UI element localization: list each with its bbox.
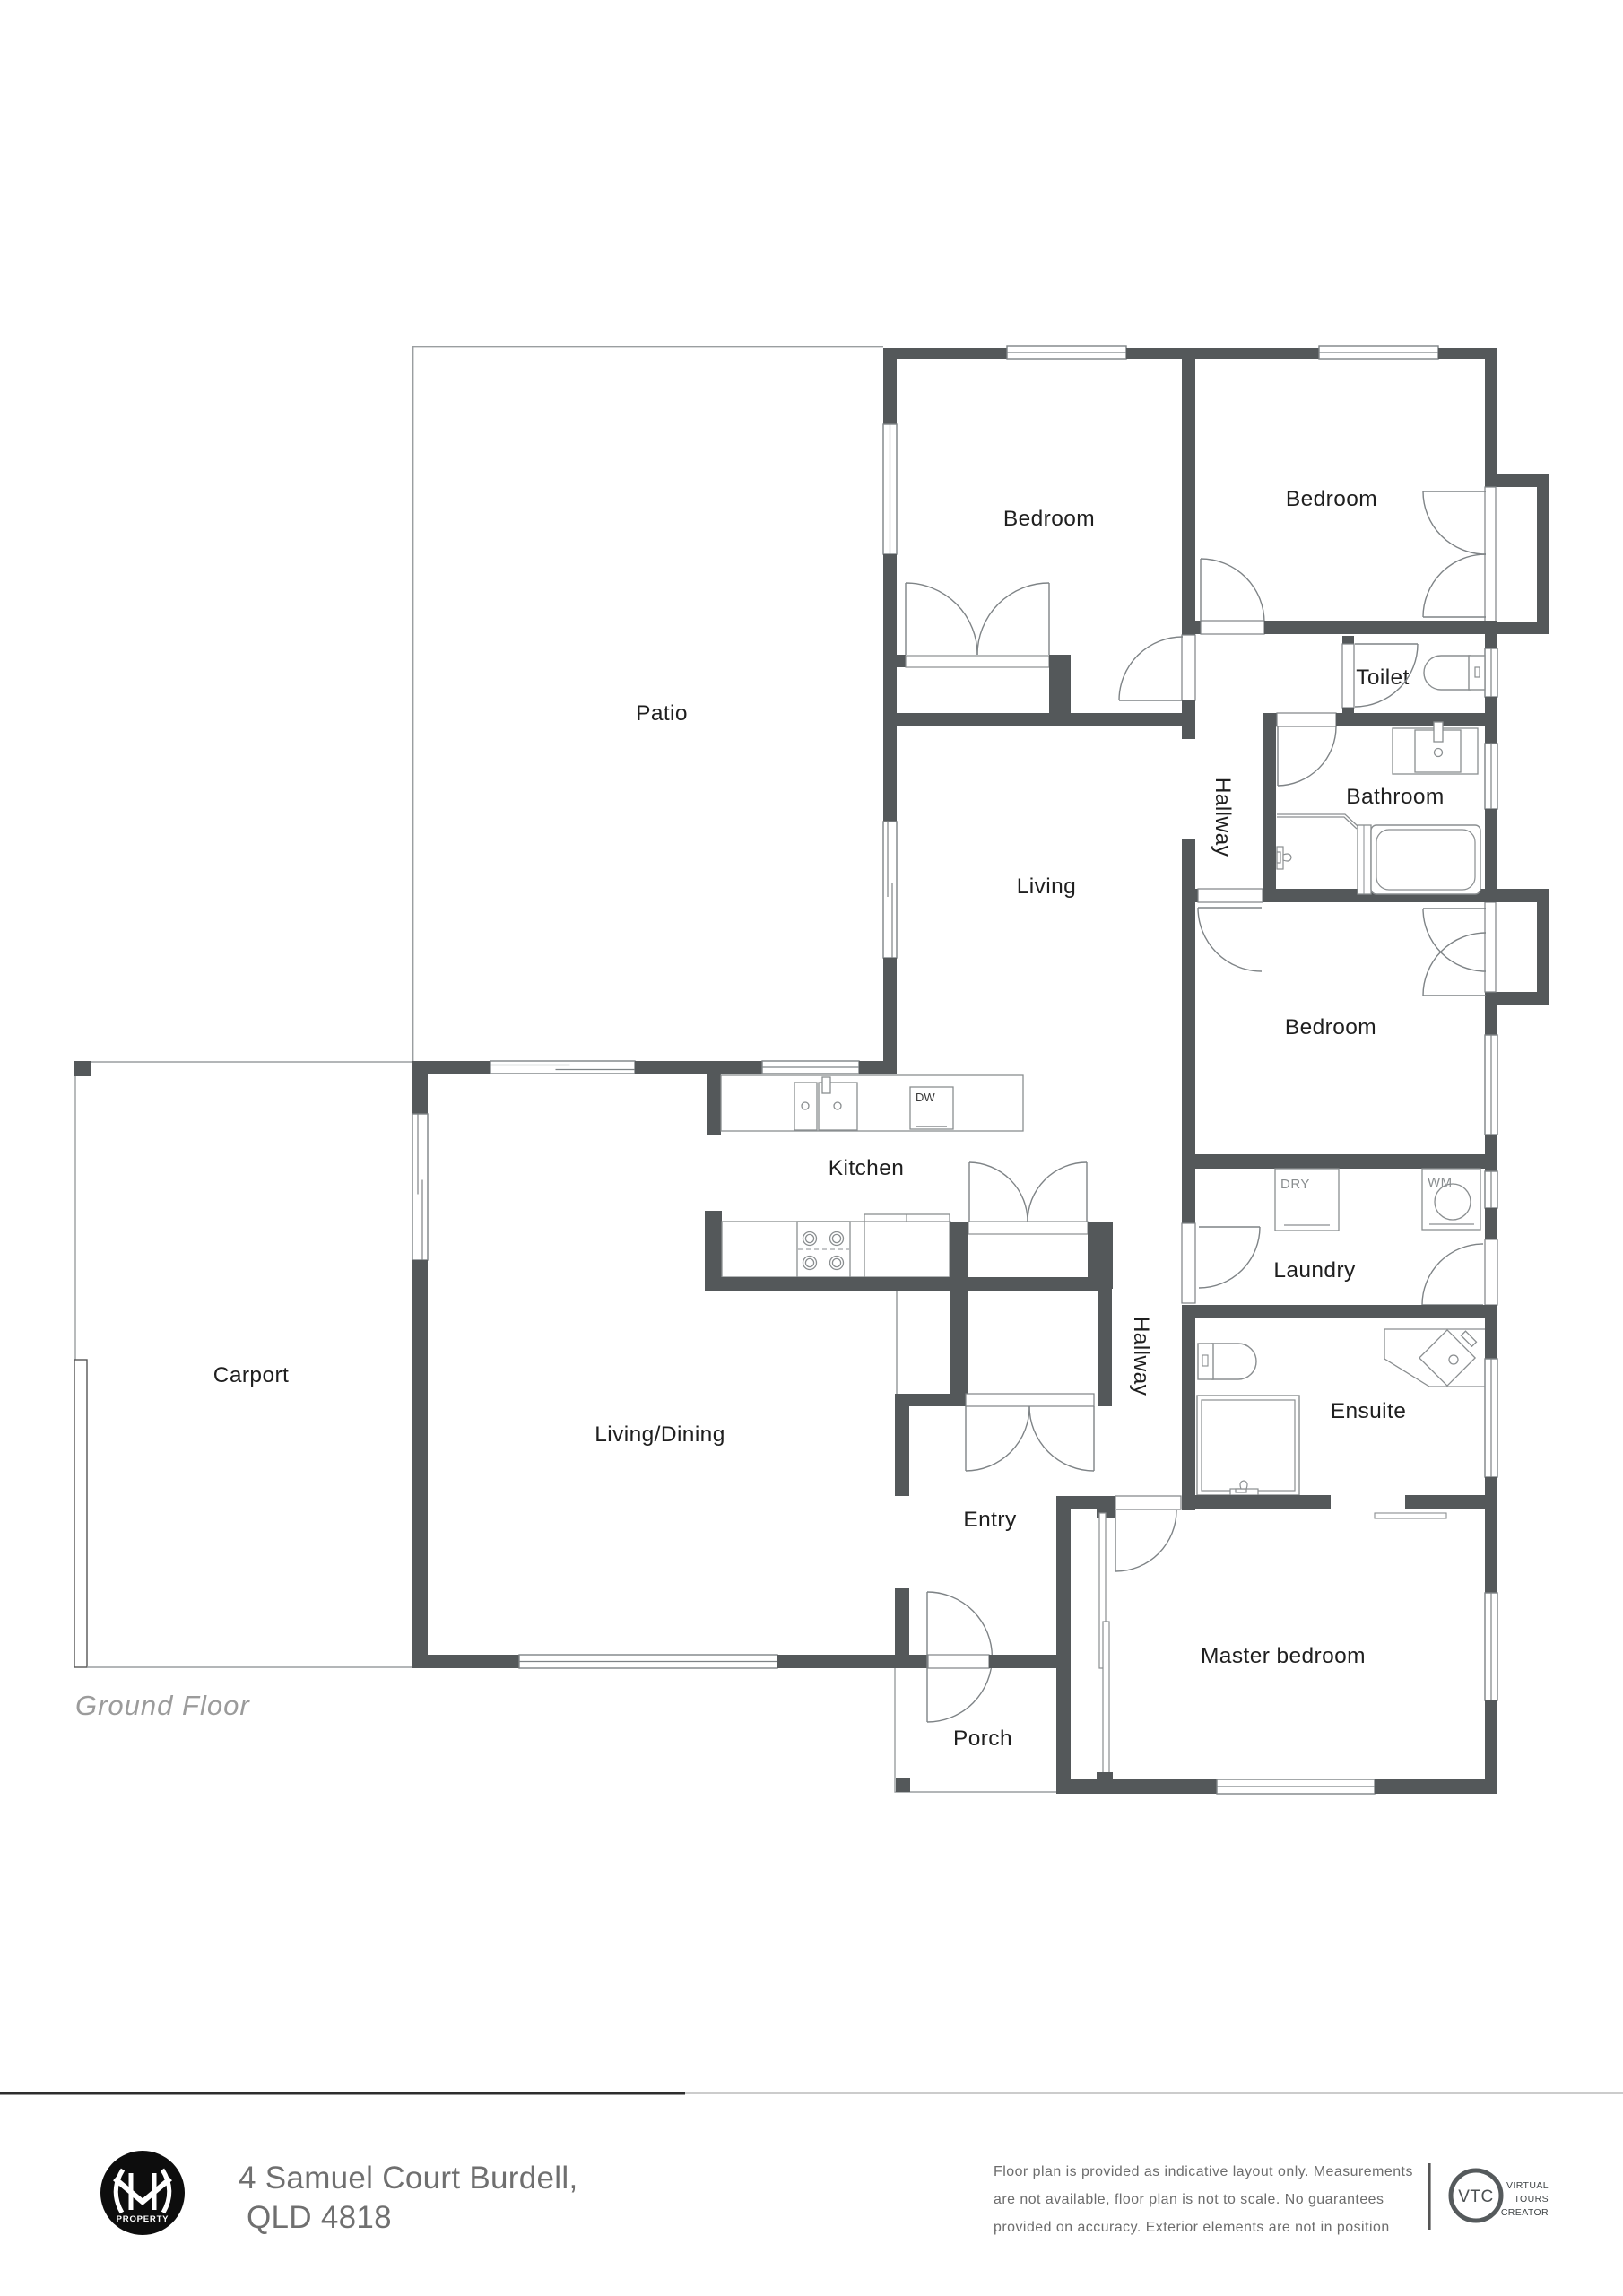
svg-text:Laundry: Laundry [1273, 1258, 1356, 1283]
svg-text:Bedroom: Bedroom [1285, 1015, 1376, 1039]
svg-text:Bedroom: Bedroom [1003, 507, 1095, 531]
svg-text:Ground Floor: Ground Floor [75, 1690, 250, 1721]
svg-text:Floor plan is provided as indi: Floor plan is provided as indicative lay… [994, 2164, 1413, 2179]
svg-text:Ensuite: Ensuite [1331, 1399, 1407, 1423]
svg-text:Bathroom: Bathroom [1346, 785, 1444, 809]
svg-text:Patio: Patio [636, 701, 688, 726]
svg-text:Hallway: Hallway [1211, 778, 1235, 857]
svg-text:Bedroom: Bedroom [1286, 487, 1377, 511]
svg-text:WM: WM [1428, 1175, 1453, 1190]
svg-text:Carport: Carport [213, 1363, 290, 1387]
svg-text:TOURS: TOURS [1514, 2194, 1549, 2205]
svg-text:Master bedroom: Master bedroom [1201, 1644, 1366, 1668]
svg-text:4 Samuel Court Burdell,: 4 Samuel Court Burdell, [239, 2161, 577, 2196]
svg-text:Living: Living [1017, 874, 1076, 899]
svg-text:are not available, floor plan: are not available, floor plan is not to … [994, 2192, 1384, 2207]
svg-text:VIRTUAL: VIRTUAL [1506, 2180, 1549, 2191]
svg-text:Living/Dining: Living/Dining [595, 1422, 725, 1447]
svg-text:Porch: Porch [953, 1726, 1012, 1751]
svg-text:Entry: Entry [963, 1508, 1017, 1532]
svg-text:PROPERTY: PROPERTY [117, 2214, 169, 2224]
svg-text:Hallway: Hallway [1129, 1317, 1153, 1396]
svg-text:VTC: VTC [1458, 2187, 1494, 2206]
svg-text:provided on accuracy. Exterior: provided on accuracy. Exterior elements … [994, 2220, 1390, 2235]
svg-text:DW: DW [916, 1091, 935, 1104]
svg-text:QLD 4818: QLD 4818 [247, 2200, 392, 2235]
svg-text:CREATOR: CREATOR [1501, 2207, 1549, 2218]
svg-text:DRY: DRY [1280, 1177, 1310, 1192]
svg-text:Kitchen: Kitchen [829, 1156, 905, 1180]
